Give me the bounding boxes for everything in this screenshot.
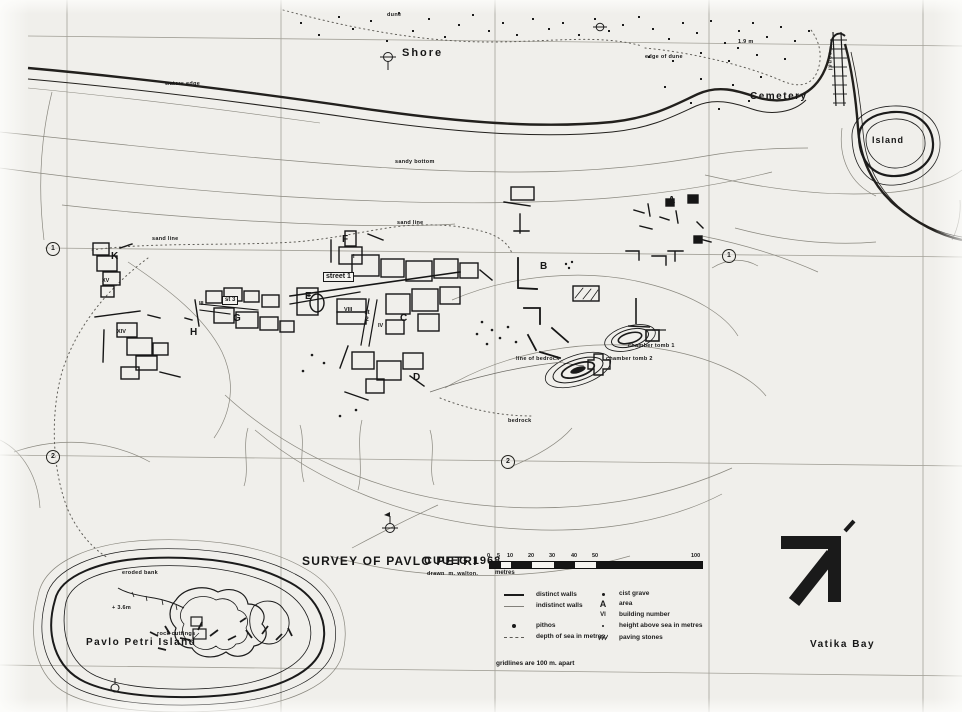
distinct-walls-icon bbox=[501, 594, 527, 596]
legend-label: cist grave bbox=[619, 591, 649, 598]
survey-map-sheet: dune Shore edge of dune 1.9 m canal Ceme… bbox=[0, 0, 962, 712]
map-linework bbox=[0, 0, 962, 712]
scale-bar-segments bbox=[489, 561, 703, 569]
survey-marker bbox=[380, 53, 396, 71]
area-letter-k: K bbox=[111, 252, 118, 262]
legend-item-pithos: pithos bbox=[501, 623, 556, 630]
north-arrow bbox=[781, 521, 854, 602]
legend-footnote: gridlines are 100 m. apart bbox=[496, 661, 574, 668]
area-letter-c: C bbox=[400, 314, 407, 324]
label-sandy-bottom: sandy bottom bbox=[395, 160, 435, 166]
area-letter-h: H bbox=[190, 328, 197, 338]
label-pavlo-petri-island: Pavlo Petri Island bbox=[86, 638, 196, 648]
scale-unit: metres bbox=[495, 570, 515, 576]
island-top-right bbox=[852, 106, 940, 185]
area-letter-f: F bbox=[342, 235, 348, 245]
scale-tick: 20 bbox=[528, 553, 534, 559]
canal-structure bbox=[830, 32, 847, 106]
building-number: VIII bbox=[344, 308, 352, 314]
label-sand-line-mid: sand line bbox=[397, 221, 424, 227]
area-letter-d: D bbox=[413, 373, 420, 383]
label-waters-edge: waters edge bbox=[165, 82, 200, 88]
building-number: XV bbox=[102, 279, 109, 285]
legend-label: building number bbox=[619, 612, 670, 619]
label-island: Island bbox=[872, 136, 904, 145]
area-letter-g: G bbox=[233, 314, 241, 324]
building-number: I bbox=[353, 255, 355, 261]
grid-number-2-mid: 2 bbox=[501, 455, 515, 469]
label-st-3: st 3 bbox=[222, 296, 238, 305]
label-sand-line-left: sand line bbox=[152, 237, 179, 243]
legend-item-distinct-walls: distinct walls bbox=[501, 592, 577, 599]
building-number: III bbox=[306, 294, 311, 300]
dune-grave-dots bbox=[300, 12, 810, 110]
legend-label: pithos bbox=[536, 623, 556, 630]
legend-label: depth of sea in metres bbox=[536, 634, 605, 641]
indistinct-walls-icon bbox=[501, 606, 527, 607]
label-edge-of-dune: edge of dune bbox=[645, 55, 683, 61]
area-letter-b: B bbox=[540, 262, 547, 272]
label-line-of-bedrock: line of bedrock bbox=[516, 357, 560, 363]
grid-number-1-left: 1 bbox=[46, 242, 60, 256]
grid-number-1-right: 1 bbox=[722, 249, 736, 263]
label-cemetery: Cemetery bbox=[750, 92, 808, 102]
building-number: XIV bbox=[117, 330, 126, 336]
scale-tick: 100 bbox=[691, 553, 700, 559]
legend-label: height above sea in metres bbox=[619, 623, 702, 630]
scale-tick: 10 bbox=[507, 553, 513, 559]
ruin-buildings bbox=[93, 187, 711, 400]
legend-item-indistinct-walls: indistinct walls bbox=[501, 603, 583, 610]
area-letter-a: A bbox=[668, 196, 675, 206]
pavlo-petri-island bbox=[34, 540, 346, 712]
legend-label: area bbox=[619, 601, 632, 608]
scale-tick: 5 bbox=[497, 553, 500, 559]
building-number-symbol: VI bbox=[596, 612, 610, 618]
pithos-dots bbox=[302, 261, 574, 418]
label-shore: Shore bbox=[402, 48, 443, 59]
scale-tick: 40 bbox=[571, 553, 577, 559]
label-street-1: street 1 bbox=[323, 272, 354, 282]
label-dune: dune bbox=[387, 13, 401, 19]
label-st-2: st 2 bbox=[362, 310, 372, 324]
label-chamber-tomb-1: chamber tomb 1 bbox=[628, 344, 675, 350]
area-symbol: A bbox=[596, 600, 610, 609]
paving-stones-icon bbox=[596, 634, 610, 642]
height-dot-icon bbox=[596, 625, 610, 627]
legend-item-sea-depth: depth of sea in metres bbox=[501, 634, 605, 641]
label-eroded-bank: eroded bank bbox=[122, 571, 158, 577]
scale-tick: 0 bbox=[487, 553, 490, 559]
grid-number-2-left: 2 bbox=[46, 450, 60, 464]
label-dune-height: 1.9 m bbox=[738, 40, 754, 46]
map-credit: drawn m. walton. bbox=[427, 572, 478, 578]
survey-marker bbox=[593, 23, 607, 31]
building-number: IV bbox=[378, 324, 383, 330]
legend-item-height-above-sea: height above sea in metres bbox=[596, 623, 702, 630]
survey-marker bbox=[382, 512, 398, 533]
sea-depth-icon bbox=[501, 637, 527, 638]
depth-contours bbox=[0, 92, 962, 576]
legend-label: indistinct walls bbox=[536, 603, 583, 610]
legend-label: paving stones bbox=[619, 635, 663, 642]
label-island-height: + 3.6m bbox=[112, 606, 131, 612]
legend-item-building-number: VI building number bbox=[596, 612, 670, 619]
pithos-icon bbox=[501, 624, 527, 628]
label-canal: canal bbox=[826, 52, 832, 71]
label-chamber-tomb-2: chamber tomb 2 bbox=[606, 357, 653, 363]
legend-item-area: A area bbox=[596, 600, 632, 609]
scale-tick: 50 bbox=[592, 553, 598, 559]
label-bedrock: bedrock bbox=[508, 419, 532, 425]
label-vatika-bay: Vatika Bay bbox=[810, 640, 875, 650]
scale-bar: 0 5 10 20 30 40 50 100 metres bbox=[489, 553, 703, 579]
building-number: III bbox=[199, 302, 204, 308]
legend-label: distinct walls bbox=[536, 592, 577, 599]
cist-grave-icon bbox=[596, 593, 610, 596]
legend-item-paving-stones: paving stones bbox=[596, 634, 663, 642]
legend-item-cist-grave: cist grave bbox=[596, 591, 649, 598]
scale-tick: 30 bbox=[549, 553, 555, 559]
